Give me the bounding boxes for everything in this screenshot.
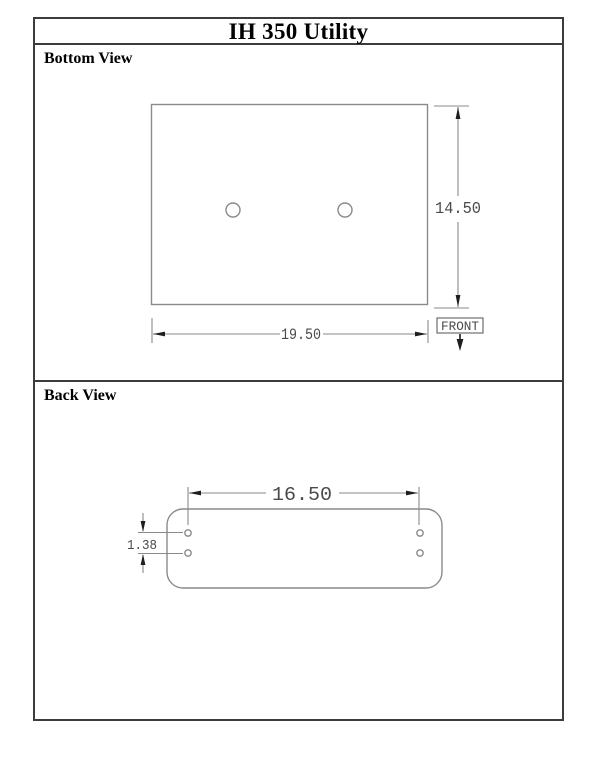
sheet-frame: IH 350 Utility Bottom View Back View: [33, 17, 564, 721]
page-title: IH 350 Utility: [229, 19, 369, 43]
drawing-sheet: IH 350 Utility Bottom View Back View: [0, 0, 600, 776]
back-view-label: Back View: [44, 388, 116, 404]
bottom-view-section: Bottom View: [35, 45, 562, 382]
title-bar: IH 350 Utility: [35, 19, 562, 45]
bottom-view-label: Bottom View: [44, 51, 132, 67]
back-view-section: Back View: [35, 382, 562, 719]
